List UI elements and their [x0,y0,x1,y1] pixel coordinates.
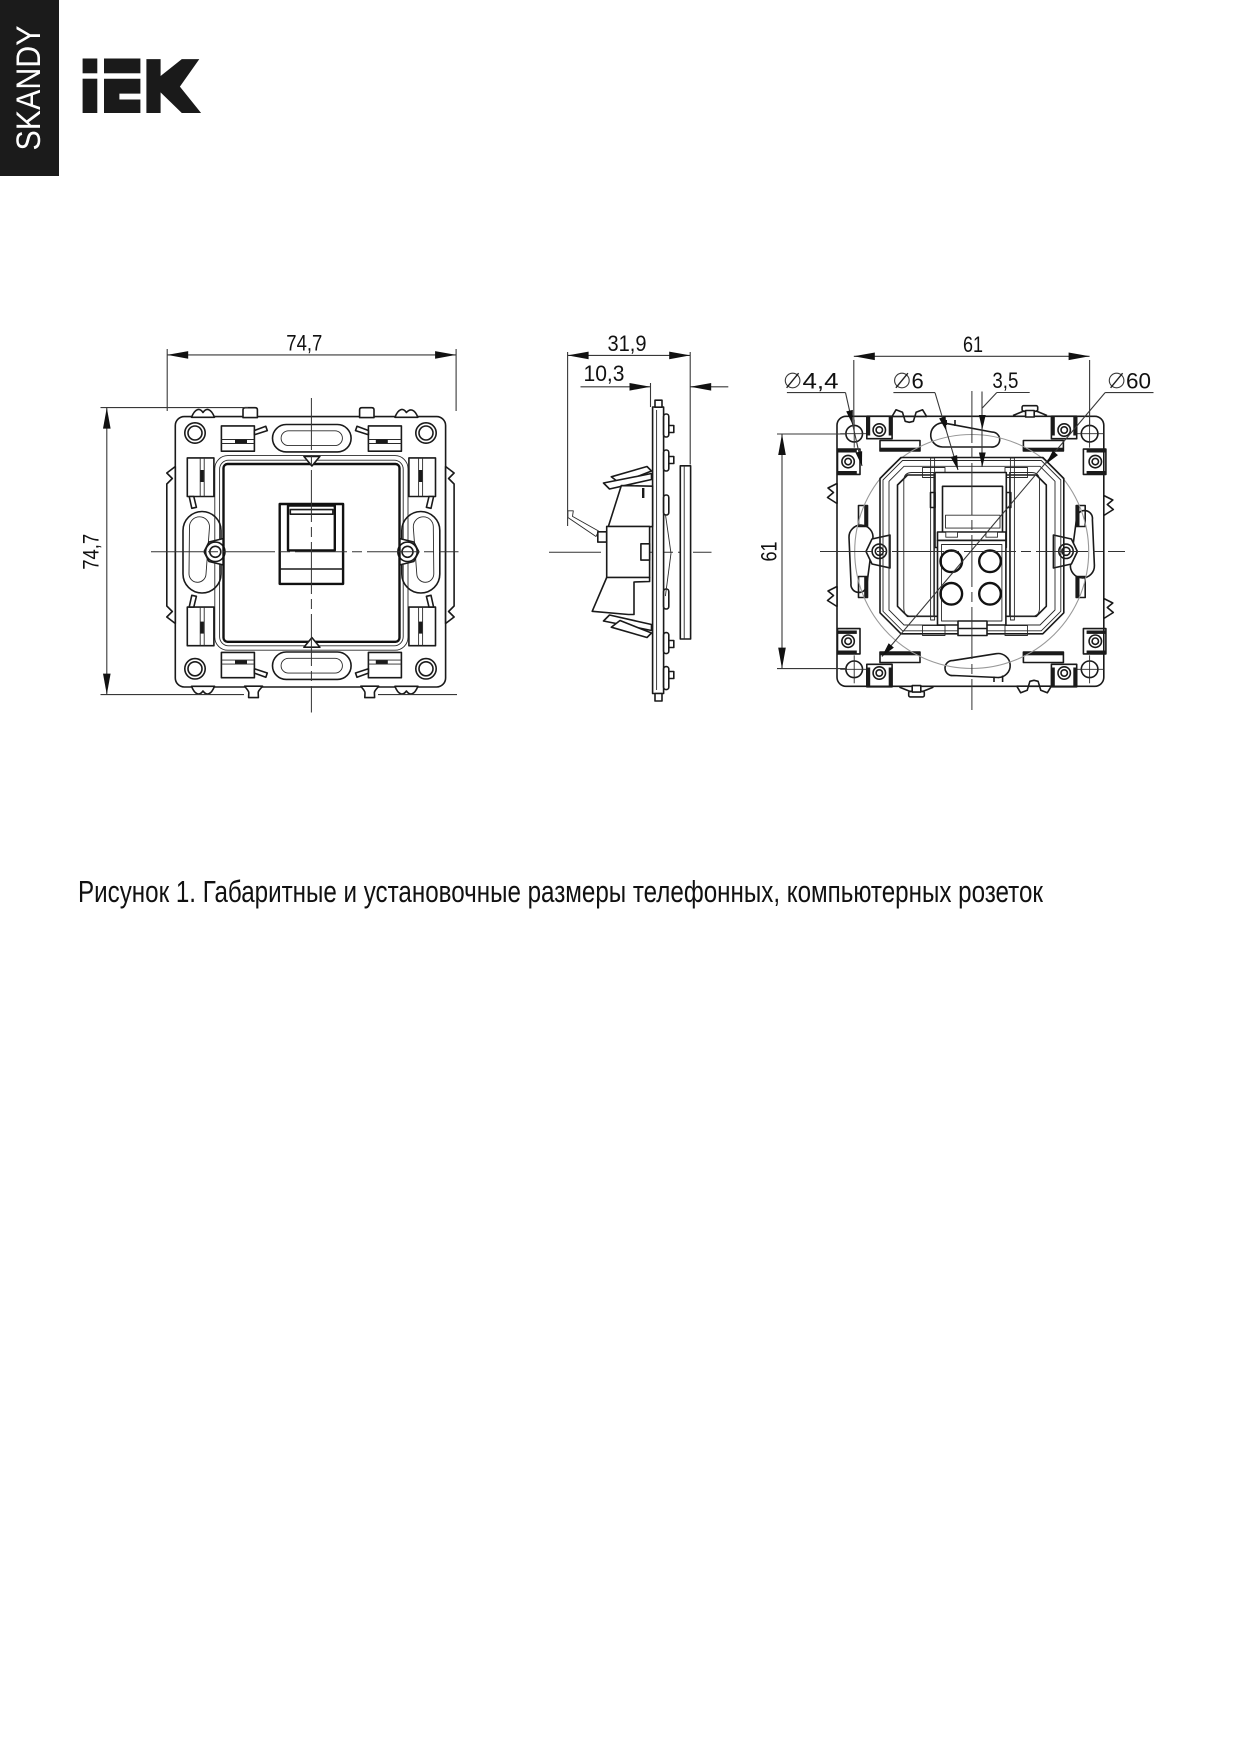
svg-text:31,9: 31,9 [608,331,647,356]
svg-text:4,4: 4,4 [803,369,839,394]
svg-text:74,7: 74,7 [79,534,104,570]
svg-text:61: 61 [963,332,983,357]
svg-text:74,7: 74,7 [286,331,322,356]
svg-text:10,3: 10,3 [584,361,625,386]
svg-text:3,5: 3,5 [992,368,1018,393]
svg-text:61: 61 [757,542,782,562]
svg-text:Рисунок 1. Габаритные и устано: Рисунок 1. Габаритные и установочные раз… [78,874,1043,909]
svg-text:SKANDY: SKANDY [10,26,48,151]
svg-text:60: 60 [1126,369,1151,394]
svg-text:6: 6 [912,369,924,394]
